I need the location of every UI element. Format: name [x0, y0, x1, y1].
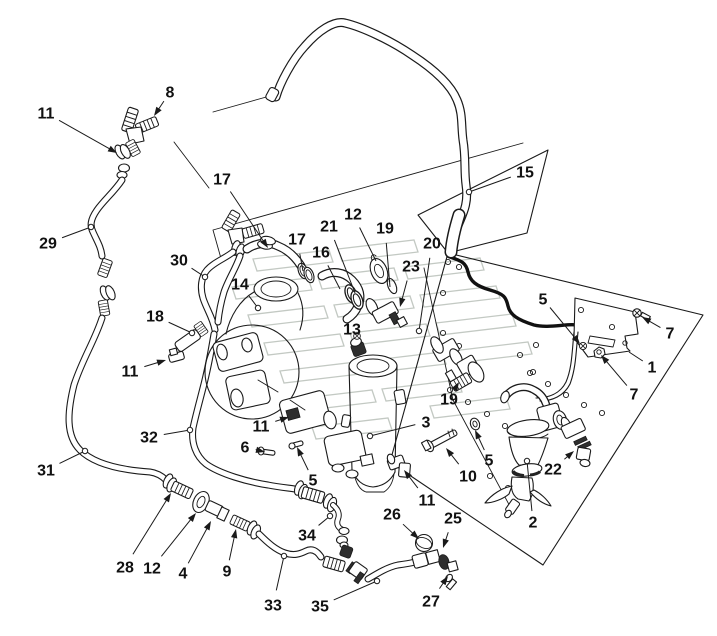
leader-arrowhead	[156, 360, 166, 366]
callout-label-4-38: 4	[179, 566, 188, 583]
bottom-hose-run	[259, 534, 458, 590]
left-hose-assembly	[69, 107, 166, 480]
leader-dot	[416, 328, 421, 333]
leader-dot	[367, 433, 372, 438]
leader-dot	[88, 224, 93, 229]
leader-line-3-26	[370, 425, 415, 436]
callout-label-5-25: 5	[309, 473, 318, 490]
callout-label-2-31: 2	[529, 515, 538, 532]
callout-label-6-24: 6	[241, 440, 250, 457]
callout-label-11-23: 11	[253, 419, 270, 436]
callout-label-5-29: 5	[485, 453, 494, 470]
leader-arrowhead	[297, 447, 304, 456]
leader-line-4-38	[188, 528, 207, 563]
callout-label-13-19: 13	[343, 322, 361, 339]
callout-label-11-20: 11	[122, 364, 139, 381]
leader-line-25-34	[446, 532, 449, 540]
callout-label-27-35: 27	[422, 594, 440, 611]
leader-dot	[327, 513, 332, 518]
leader-line-1-17	[629, 352, 643, 361]
callout-label-17-7: 17	[288, 232, 306, 249]
leader-arrowhead	[204, 521, 211, 530]
callout-label-31-22: 31	[37, 463, 55, 480]
leader-line-5-15	[550, 307, 575, 337]
leader-arrowhead	[231, 529, 237, 538]
leader-line-29-2	[62, 227, 91, 238]
leader-dot	[524, 458, 529, 463]
leader-line-32-21	[164, 430, 190, 434]
leader-arrowhead	[443, 538, 449, 548]
leader-dot	[202, 274, 207, 279]
leader-line-28-36	[133, 500, 167, 554]
leader-arrowhead	[188, 513, 196, 522]
callout-label-7-18: 7	[630, 387, 639, 404]
check-valve-couplers	[364, 297, 487, 392]
leader-line-35-42	[334, 581, 377, 600]
leader-line-18-6	[169, 322, 192, 333]
leader-dot	[466, 189, 471, 194]
callout-label-14-5: 14	[231, 277, 249, 294]
vent-hose	[265, 23, 467, 254]
leader-line-8-0	[158, 101, 163, 109]
leader-line-5-25	[300, 454, 308, 470]
leader-dot	[374, 578, 379, 583]
callout-label-15-14: 15	[516, 165, 534, 182]
parts-diagram-page: 8112917301418171621121920231557171311323…	[0, 0, 717, 636]
leader-line-31-22	[59, 451, 85, 463]
callout-label-34-40: 34	[298, 528, 316, 545]
callout-label-8-0: 8	[166, 85, 175, 102]
callout-label-28-36: 28	[116, 560, 134, 577]
callout-label-7-16: 7	[666, 326, 675, 343]
leader-dot	[82, 448, 87, 453]
parts-diagram: 8112917301418171621121920231557171311323…	[0, 0, 717, 636]
callout-label-32-21: 32	[140, 430, 158, 447]
leader-dot	[255, 305, 260, 310]
callout-label-1-17: 1	[648, 360, 657, 377]
leader-arrowhead	[446, 448, 454, 457]
leader-line-27-35	[439, 583, 443, 589]
leader-dot	[187, 427, 192, 432]
callout-label-35-42: 35	[311, 599, 329, 616]
leader-line-11-20	[144, 362, 158, 366]
leader-line-7-16	[649, 321, 661, 328]
leader-arrowhead	[475, 430, 482, 440]
callout-label-33-41: 33	[264, 598, 282, 615]
callout-label-11-32: 11	[419, 493, 436, 510]
callout-label-20-12: 20	[423, 236, 441, 253]
callout-label-17-3: 17	[213, 172, 231, 189]
leader-arrowhead	[164, 493, 171, 502]
callout-label-11-1: 11	[38, 106, 55, 123]
leader-dot	[281, 553, 286, 558]
callout-label-3-26: 3	[422, 415, 431, 432]
callout-label-25-34: 25	[444, 511, 462, 528]
callout-label-23-13: 23	[402, 259, 420, 276]
callout-label-12-37: 12	[143, 561, 161, 578]
leader-line-10-28	[451, 454, 459, 464]
callout-label-18-6: 18	[146, 309, 164, 326]
leader-line-12-37	[161, 519, 191, 556]
leader-line-11-1	[59, 120, 110, 149]
callout-label-9-39: 9	[223, 564, 232, 581]
callout-label-21-9: 21	[320, 219, 338, 236]
leader-dot	[189, 330, 194, 335]
callout-label-22-30: 22	[544, 462, 562, 479]
callout-label-19-27: 19	[440, 392, 458, 409]
leader-arrowhead	[154, 107, 162, 116]
leader-line-33-41	[276, 556, 284, 590]
callout-label-16-8: 16	[312, 245, 330, 262]
callout-label-10-28: 10	[459, 469, 477, 486]
leader-line-9-39	[229, 537, 234, 560]
leader-line-26-33	[403, 524, 413, 533]
callout-label-19-11: 19	[376, 221, 394, 238]
callout-label-30-4: 30	[170, 253, 188, 270]
callout-label-29-2: 29	[39, 236, 57, 253]
leader-line-7-18	[606, 361, 627, 385]
leader-arrowhead	[399, 297, 405, 307]
callout-label-5-15: 5	[539, 292, 548, 309]
callout-label-12-10: 12	[344, 207, 362, 224]
callout-label-26-33: 26	[383, 507, 401, 524]
